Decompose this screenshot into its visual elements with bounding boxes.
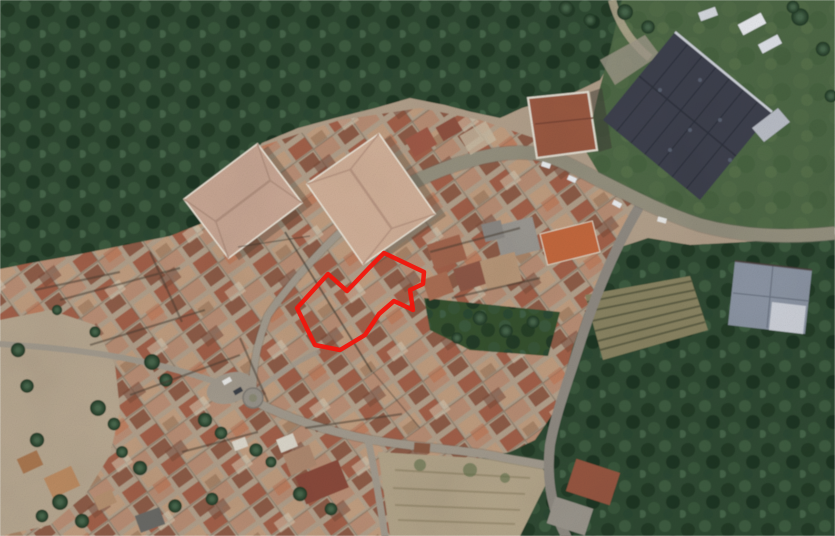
satellite-image xyxy=(0,0,835,536)
satellite-map xyxy=(0,0,835,536)
